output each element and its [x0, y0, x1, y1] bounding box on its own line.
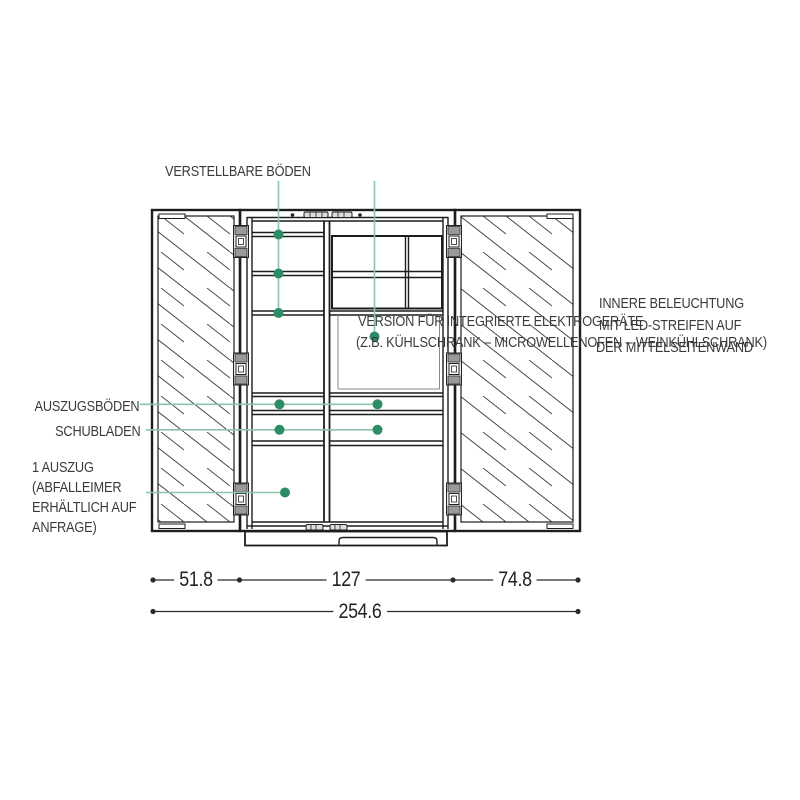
door-handle-profile: [547, 214, 573, 219]
inner-lighting-label-line2: MIT LED-STREIFEN AUF: [599, 316, 741, 337]
drawers-label: SCHUBLADEN: [56, 422, 141, 443]
inner-lighting-label-line1: INNERE BELEUCHTUNG: [599, 294, 744, 315]
cabinet-carcass: [240, 210, 455, 531]
dimension-left-door-width: 51.8: [174, 569, 218, 590]
hinge: [234, 483, 249, 515]
plinth: [245, 532, 447, 546]
door-handle-profile: [159, 524, 185, 529]
adjustable-shelves: [252, 233, 324, 316]
hinge: [447, 483, 462, 515]
cabinet-technical-drawing: VERSTELLBARE BÖDEN VERSION FÜR INTEGRIER…: [0, 0, 800, 800]
led-hardware-strips: [291, 212, 362, 530]
waste-pullout-label-line4: ANFRAGE): [32, 518, 97, 539]
right-glass-door: [455, 210, 580, 531]
hinge: [234, 226, 249, 258]
hinges: [234, 226, 462, 516]
pullout-shelves-label: AUSZUGSBÖDEN: [34, 397, 139, 418]
inner-lighting-label-line3: DER MITTELSEITENWAND: [596, 338, 753, 359]
dimension-right-door-width: 74.8: [493, 569, 537, 590]
door-handle-profile: [159, 214, 185, 219]
cubby-grid: [330, 236, 444, 315]
waste-pullout-label-line1: 1 AUSZUG: [32, 458, 94, 479]
hinge: [447, 226, 462, 258]
left-glass-door: [152, 210, 240, 531]
door-handle-profile: [547, 524, 573, 529]
adjustable-shelves-label: VERSTELLBARE BÖDEN: [165, 162, 311, 183]
hinge: [447, 353, 462, 385]
dimension-center-cabinet-width: 127: [327, 569, 366, 590]
dimension-total-width: 254.6: [333, 601, 386, 622]
waste-pullout-label-line3: ERHÄLTLICH AUF: [32, 498, 136, 519]
hinge: [234, 353, 249, 385]
waste-pullout-label-line2: (ABFALLEIMER: [32, 478, 121, 499]
